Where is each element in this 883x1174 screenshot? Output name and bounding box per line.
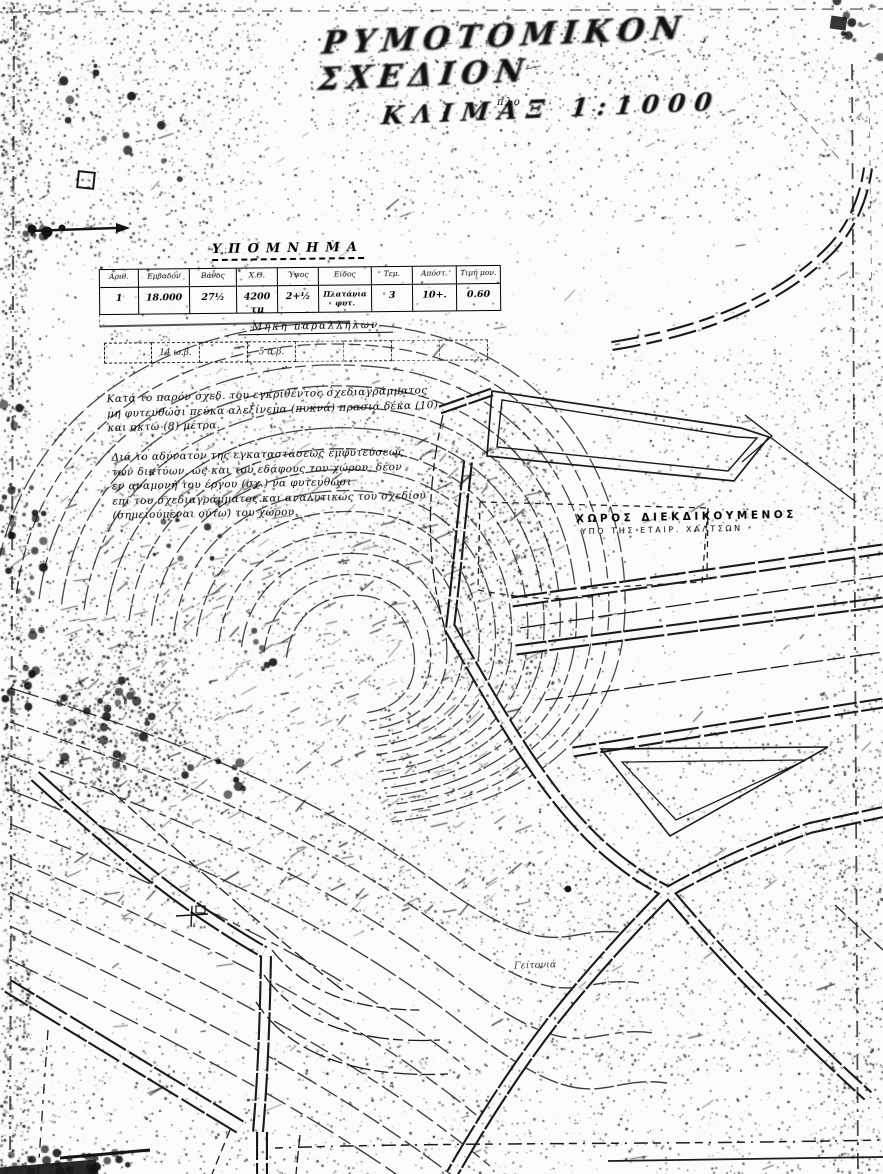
plot-parallelogram: [487, 391, 772, 481]
small-square-symbol: [77, 171, 95, 189]
measure-cell: [296, 341, 344, 362]
triangle-block: [601, 747, 828, 836]
legend-value-cell: 0.60: [456, 284, 500, 310]
handwritten-note-1: Κατά το παρόν σχεδ. του εγκριθέντος σχεδ…: [106, 382, 487, 436]
measure-cell: [392, 340, 440, 361]
legend-value-cell: 4200 τμ: [236, 286, 277, 312]
photocopy-noise-overlay: [0, 0, 883, 1174]
measure-cell: 5 α.β.: [248, 341, 296, 362]
small-map-label: Γείτονιά: [514, 959, 557, 971]
measure-cell: 14 ω.β.: [152, 342, 200, 363]
measure-table-heading: Μήκη παραλλήλων: [238, 320, 393, 336]
legend-header-cell: Τιμή μον.: [456, 266, 500, 283]
title-small-mark: πλο: [497, 97, 522, 108]
legend-header-cell: Είδος: [318, 267, 371, 285]
map-linework: [0, 0, 883, 1174]
legend-value-cell: 1: [100, 288, 138, 314]
flag-symbol: [176, 906, 208, 927]
survey-dot: [565, 886, 572, 893]
legend-header-cell: Τεμ.: [371, 267, 412, 284]
handwritten-note-2: Διά το αδύνατον της εγκαταστάσεως εμφυτε…: [111, 443, 492, 523]
scan-edge-lines: [0, 6, 883, 1174]
legend-header-cell: Ύψος: [277, 268, 318, 285]
legend-value-cell: 10+.: [412, 284, 456, 310]
measure-cell: [104, 342, 152, 363]
legend-header-cell: Αριθ.: [100, 270, 138, 287]
misc-lines: [38, 90, 883, 1174]
legend-value-cell: 2+½: [277, 286, 318, 312]
measure-table: 14 ω.β. 5 α.β.: [104, 339, 488, 363]
legend-heading: ΥΠΟΜΝΗΜΑ: [212, 240, 364, 261]
scanned-map-sheet: ΡΥΜΟΤΟΜΙΚΟΝ ΣΧΕΔΙΟΝ ΚΛΙΜΑΞ 1:1000 πλο ΥΠ…: [0, 0, 883, 1174]
claim-label-line2: ΥΠΟ ΤΗΣ ΕΤΑΙΡ. ΧΑΛΤΣΩΝ: [581, 523, 797, 537]
arrow-symbol: [28, 223, 131, 238]
legend-header-cell: Χ.Θ.: [236, 268, 277, 285]
legend-header-cell: Απόστ.: [412, 266, 456, 283]
legend-value-cell: 27½: [189, 287, 236, 313]
legend-value-cell: Πλατάνια φυτ.: [318, 285, 371, 312]
sheet-title: ΡΥΜΟΤΟΜΙΚΟΝ ΣΧΕΔΙΟΝ ΚΛΙΜΑΞ 1:1000: [312, 6, 784, 133]
legend-header-cell: Βάθος: [189, 269, 236, 286]
measure-cell: [344, 340, 392, 361]
claim-area-label: ΧΩΡΟΣ ΔΙΕΚΔΙΚΟΥΜΕΝΟΣ ΥΠΟ ΤΗΣ ΕΤΑΙΡ. ΧΑΛΤ…: [576, 509, 797, 537]
legend-header-cell: Εμβαδόν: [138, 269, 189, 287]
legend-value-cell: 3: [371, 285, 412, 311]
measure-cell: [200, 341, 248, 362]
legend-value-cell: 18.000: [138, 287, 189, 314]
lower-contour-sweeps: [10, 688, 667, 1174]
title-line1: ΡΥΜΟΤΟΜΙΚΟΝ ΣΧΕΔΙΟΝ: [316, 6, 784, 98]
measure-cell: [440, 339, 488, 360]
legend-table: Αριθ. Εμβαδόν Βάθος Χ.Θ. Ύψος Είδος Τεμ.…: [99, 265, 501, 315]
